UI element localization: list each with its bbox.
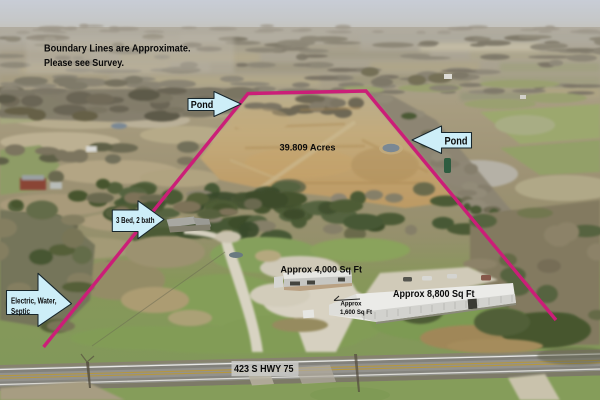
svg-text:Approx: Approx (341, 301, 362, 308)
svg-text:Approx 8,800 Sq Ft: Approx 8,800 Sq Ft (393, 289, 475, 300)
svg-text:Please see Survey.: Please see Survey. (44, 57, 124, 69)
svg-text:Pond: Pond (191, 100, 214, 111)
svg-text:423 S HWY 75: 423 S HWY 75 (234, 363, 294, 375)
svg-text:Boundary Lines are Approximate: Boundary Lines are Approximate. (44, 43, 191, 55)
svg-text:39.809 Acres: 39.809 Acres (280, 143, 336, 154)
svg-text:Septic: Septic (11, 306, 30, 316)
svg-text:Electric, Water,: Electric, Water, (11, 296, 57, 306)
svg-text:3 Bed, 2 bath: 3 Bed, 2 bath (116, 216, 155, 225)
svg-text:Approx 4,000 Sq Ft: Approx 4,000 Sq Ft (281, 265, 363, 276)
svg-text:1,600 Sq Ft: 1,600 Sq Ft (340, 309, 373, 316)
svg-text:Pond: Pond (445, 135, 468, 147)
